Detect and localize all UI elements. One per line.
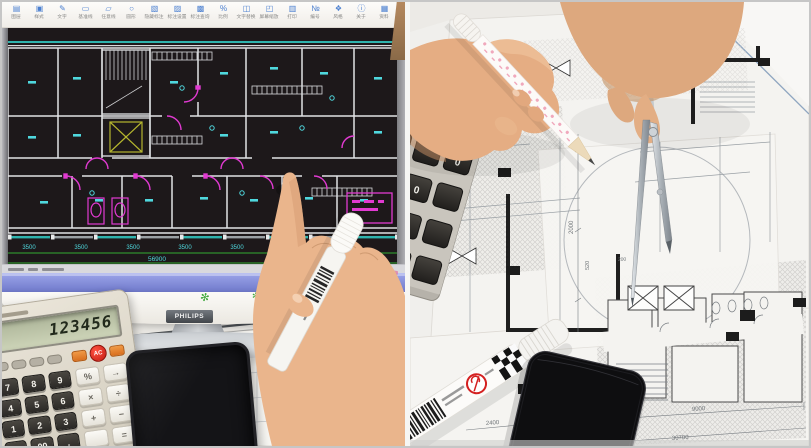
calc-digit-key[interactable]: 00 [30,436,55,446]
toolbar-icon: ○ [129,4,134,13]
dim-label: 3500 [282,245,296,251]
toolbar-label: 标注查询 [191,14,210,20]
memory-key[interactable] [29,356,45,367]
toolbar-button[interactable]: ▱ 任意线 [97,4,120,20]
calc-digit-key[interactable]: 3 [54,411,79,431]
dim-2400: 2400 [486,420,500,427]
toolbar-icon: ▧ [151,4,159,13]
ac-key[interactable]: AC [89,344,108,363]
cad-screen: 3500 3500 3500 3500 3500 3500 3500 56900 [2,28,405,264]
toolbar-label: 标注设置 [168,14,187,20]
dim-520: 520 [585,261,591,270]
toolbar-label: 资料 [380,14,390,20]
toolbar-icon: ▣ [36,4,44,13]
calc-digit-key[interactable]: 6 [51,391,76,411]
toolbar-icon: % [220,4,227,13]
dim-label: 3500 [334,245,348,251]
toolbar-icon: ▩ [197,4,205,13]
cad-floorplan: 3500 3500 3500 3500 3500 3500 3500 56900 [2,28,405,264]
toolbar-label: 编号 [311,14,321,20]
toolbar-label: 屏幕缩放 [260,14,279,20]
monitor-right-edge [397,58,405,292]
compass-screw [649,128,658,137]
toolbar-label: 任意线 [101,14,115,20]
toolbar-label: 风格 [334,14,344,20]
calc-digit-key[interactable]: 7 [2,377,20,397]
photo-frame: ▤ 图层 ▣ 样式 ✎ 文字 ▭ 基准线 ▱ 任意线 ○ 圆形 ▧ 隐藏标注 [0,0,811,448]
toolbar-icon: ◰ [266,4,274,13]
memory-key[interactable] [2,361,9,372]
memory-key[interactable] [11,359,27,370]
toolbar-label: 图层 [12,14,22,20]
sparkle-icon: ✻ [252,291,260,301]
toolbar-icon: ▱ [105,4,111,13]
toolbar-icon: ▨ [174,4,182,13]
toolbar-label: 隐藏标注 [145,14,164,20]
os-taskbar[interactable] [2,273,405,293]
sparkle-icon: ✻ [331,286,341,298]
dim-label: 3500 [22,245,36,251]
hand-shadow [570,98,750,150]
toolbar-button[interactable]: № 编号 [304,4,327,20]
toolbar-icon: ▤ [13,4,21,13]
monitor-brand-logo: PHILIPS [166,310,213,323]
dim-label: 3500 [74,245,88,251]
memory-key[interactable] [47,354,63,365]
toolbar-label: 文字替换 [237,14,256,20]
cad-toolbar: ▤ 图层 ▣ 样式 ✎ 文字 ▭ 基准线 ▱ 任意线 ○ 圆形 ▧ 隐藏标注 [2,2,405,28]
blueprint-scene: 2000 520 200 2400 9000 30700 [410,2,809,446]
calc-op-key[interactable]: + [81,407,107,427]
toolbar-button[interactable]: ▧ 隐藏标注 [143,4,166,20]
calc-digit-key[interactable]: 5 [24,394,49,414]
toolbar-label: 样式 [35,14,45,20]
dim-label: 3500 [230,245,244,251]
calc-digit-key[interactable]: 0 [4,440,29,446]
toolbar-icon: ⓘ [358,4,366,13]
left-photo-panel: ▤ 图层 ▣ 样式 ✎ 文字 ▭ 基准线 ▱ 任意线 ○ 圆形 ▧ 隐藏标注 [2,2,405,446]
calculator-keypad: 789456123000. %→×÷+−= [2,362,137,446]
toolbar-label: 基准线 [78,14,92,20]
toolbar-button[interactable]: ▦ 资料 [373,4,396,20]
toolbar-button[interactable]: ○ 圆形 [120,4,143,20]
toolbar-button[interactable]: ◫ 文字替换 [235,4,258,20]
dim-total-label: 56900 [148,256,166,263]
toolbar-button[interactable]: ▥ 打印 [281,4,304,20]
calc-op-key[interactable]: × [78,387,104,407]
toolbar-label: 圆形 [127,14,137,20]
calc-digit-key[interactable]: 8 [22,374,47,394]
monitor-left-edge [2,28,8,264]
calc-op-key[interactable]: % [75,366,101,386]
toolbar-button[interactable]: ⓘ 关于 [350,4,373,20]
toolbar-label: 关于 [357,14,367,20]
toolbar-icon: ❖ [335,4,342,13]
calc-op-key[interactable]: → [102,362,128,382]
toolbar-icon: № [311,4,320,13]
toolbar-label: 打印 [288,14,298,20]
toolbar-button[interactable]: ▩ 标注查询 [189,4,212,20]
toolbar-button[interactable]: ◰ 屏幕缩放 [258,4,281,20]
toolbar-label: 比例 [219,14,229,20]
toolbar-icon: ◫ [243,4,251,13]
toolbar-icon: ▥ [289,4,297,13]
calc-digit-key[interactable]: 1 [2,419,26,439]
smartphone [125,341,259,446]
dim-label: 3500 [178,245,192,251]
toolbar-button[interactable]: ▭ 基准线 [74,4,97,20]
toolbar-button[interactable]: ✎ 文字 [51,4,74,20]
dim-9000: 9000 [692,406,706,413]
dim-label: 3500 [126,245,140,251]
toolbar-button[interactable]: % 比例 [212,4,235,20]
toolbar-icon: ▦ [381,4,389,13]
right-photo-panel: 2000 520 200 2400 9000 30700 [410,2,809,446]
clear-key[interactable] [71,349,87,362]
toolbar-label: 文字 [58,14,68,20]
dim-200: 200 [618,257,627,263]
ce-key[interactable] [109,344,125,357]
toolbar-button[interactable]: ❖ 风格 [327,4,350,20]
calc-digit-key[interactable]: . [56,432,81,446]
toolbar-button[interactable]: ▨ 标注设置 [166,4,189,20]
photo-bottom-edge [410,440,809,446]
calc-digit-key[interactable]: 9 [48,370,73,390]
calc-digit-key[interactable]: 2 [27,415,52,435]
toolbar-button[interactable]: ▤ 图层 [5,4,28,20]
toolbar-icon: ▭ [82,4,90,13]
calc-digit-key[interactable]: 4 [2,398,23,418]
calc-op-key[interactable] [84,428,110,446]
toolbar-icon: ✎ [59,4,66,13]
dim-2000: 2000 [569,220,575,234]
toolbar-button[interactable]: ▣ 样式 [28,4,51,20]
